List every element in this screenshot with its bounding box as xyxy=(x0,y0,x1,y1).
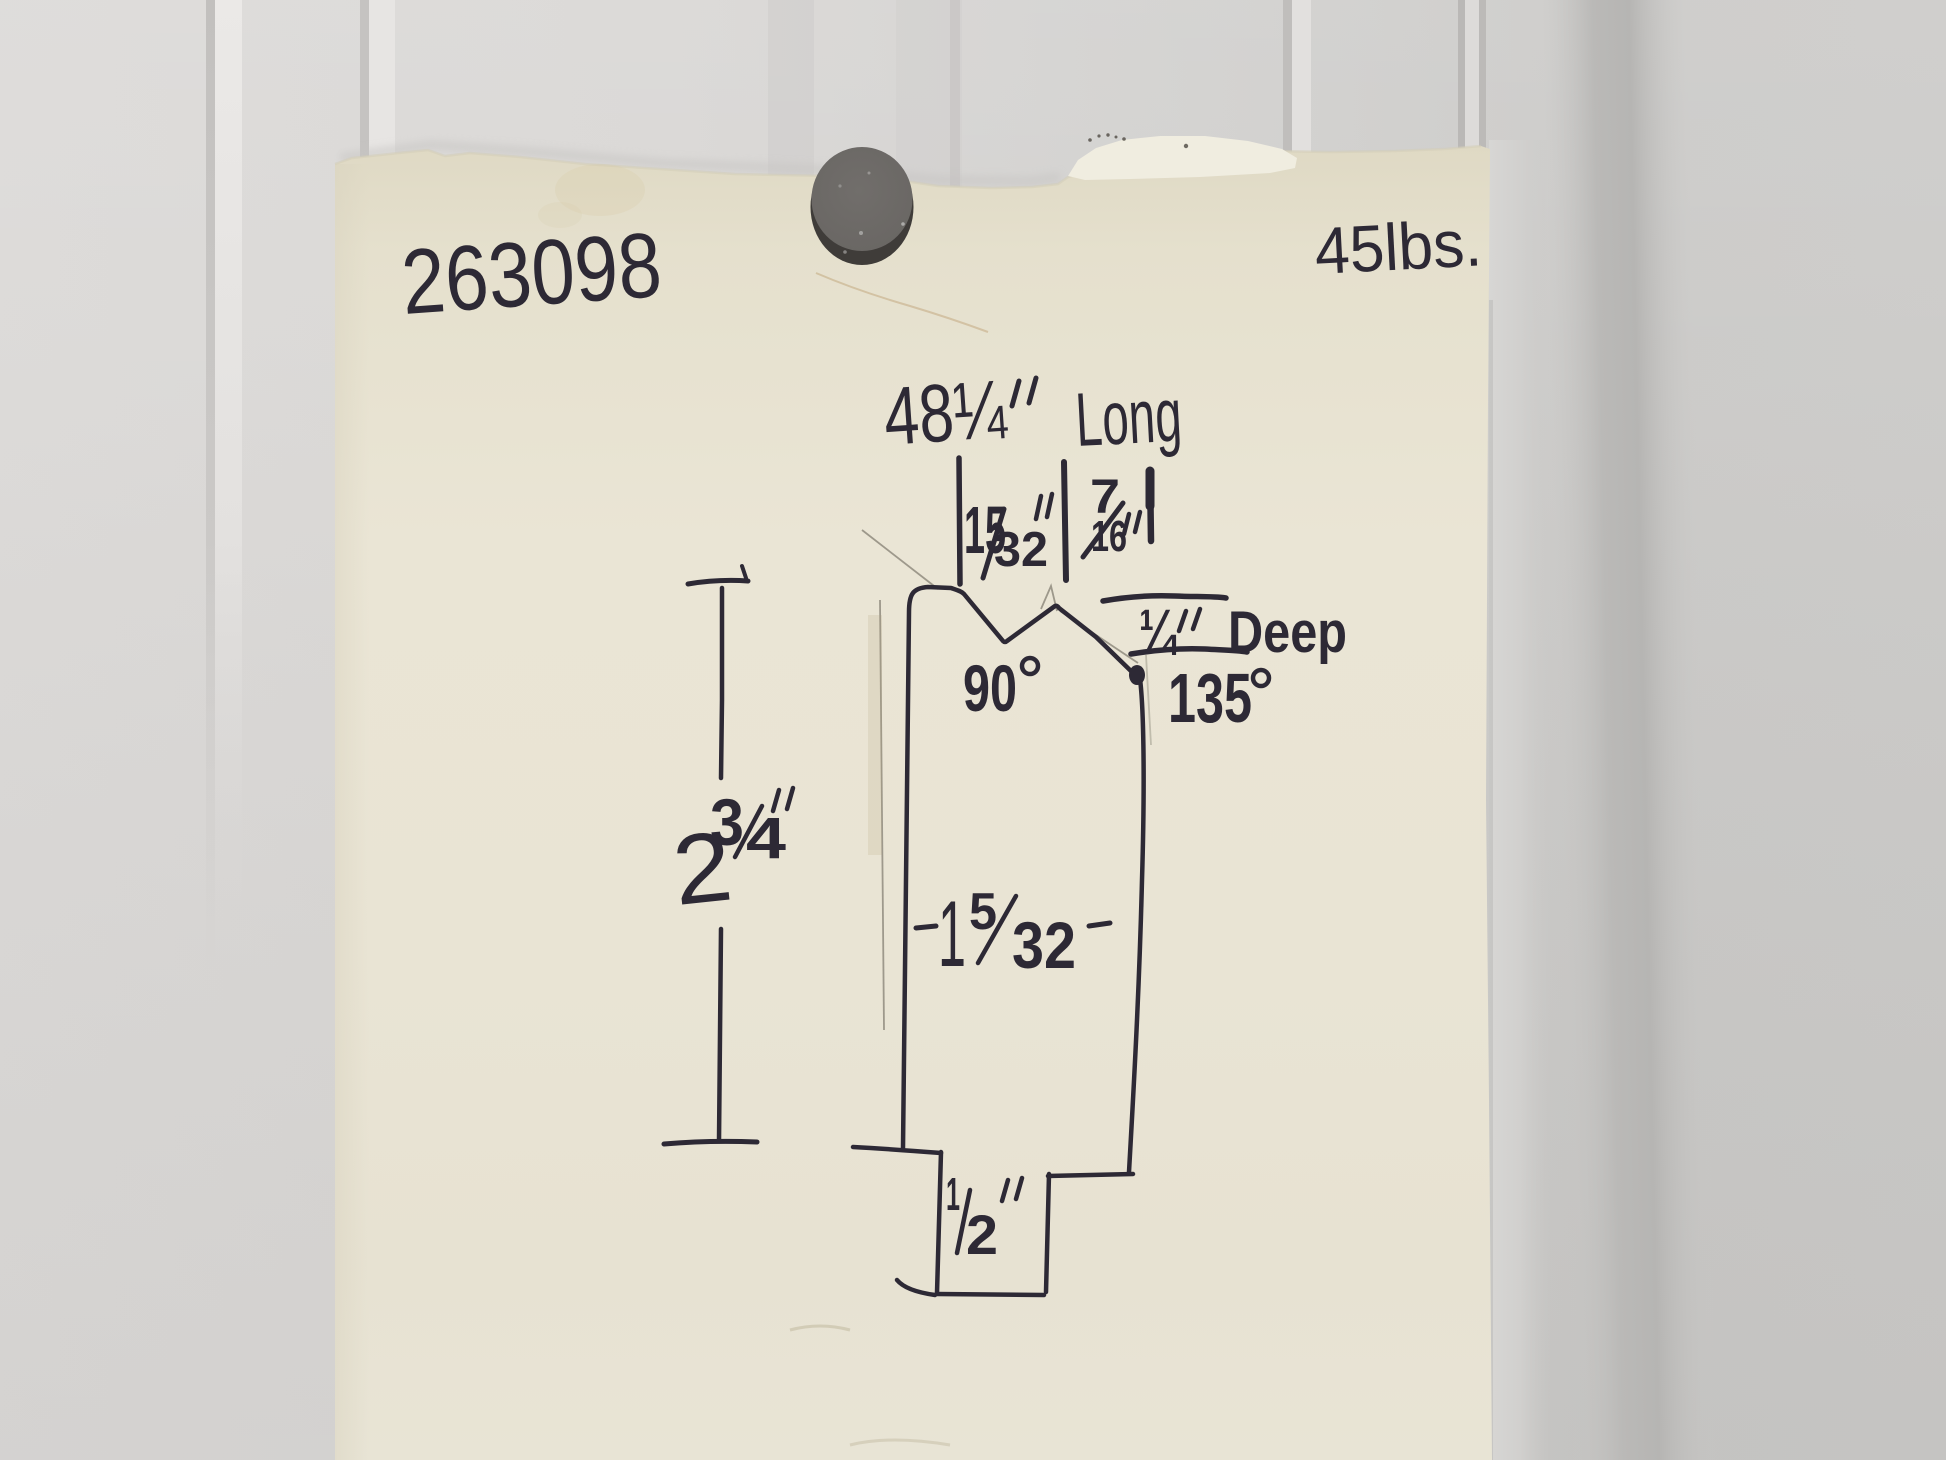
svg-text:90: 90 xyxy=(963,651,1017,725)
svg-text:2: 2 xyxy=(966,1203,998,1266)
svg-text:263098: 263098 xyxy=(398,214,664,334)
svg-text:1: 1 xyxy=(938,881,966,986)
svg-text:48¼: 48¼ xyxy=(881,364,1010,463)
svg-text:1: 1 xyxy=(946,1168,960,1220)
svg-text:45lbs.: 45lbs. xyxy=(1313,205,1484,288)
svg-text:5: 5 xyxy=(969,883,997,941)
svg-text:Long: Long xyxy=(1073,373,1183,463)
svg-text:Deep: Deep xyxy=(1228,600,1347,665)
svg-text:16: 16 xyxy=(1091,512,1127,561)
svg-text:32: 32 xyxy=(1012,908,1076,982)
svg-text:4: 4 xyxy=(746,806,786,871)
svg-text:32: 32 xyxy=(994,523,1048,577)
svg-text:135: 135 xyxy=(1168,659,1252,737)
